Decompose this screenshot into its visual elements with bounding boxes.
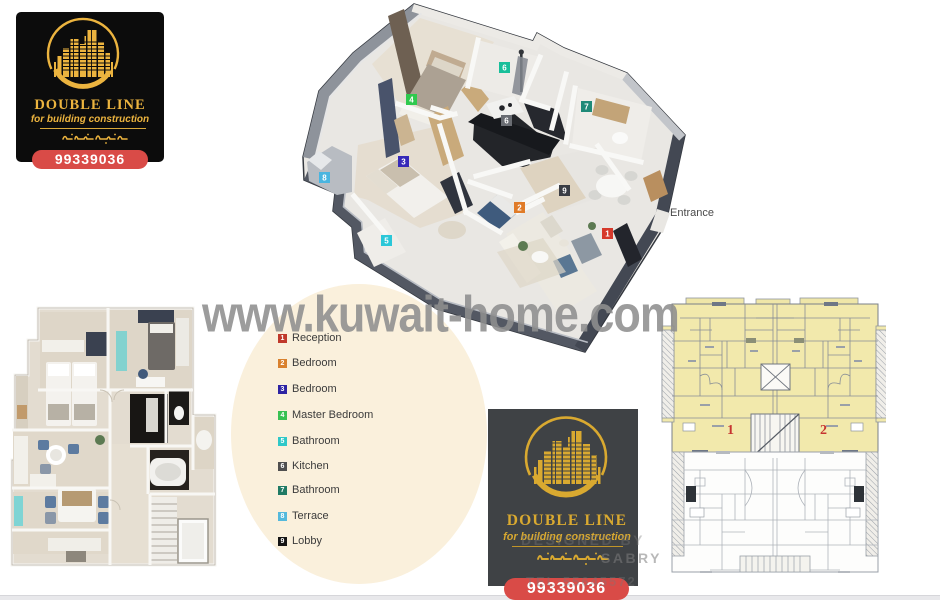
svg-text:1: 1 — [727, 423, 734, 438]
svg-text:Entrance: Entrance — [670, 207, 714, 219]
svg-text:DOUBLE LINE: DOUBLE LINE — [507, 512, 627, 529]
svg-text:for building construction: for building construction — [31, 114, 149, 125]
svg-text:6: 6 — [504, 117, 509, 126]
svg-text:3: 3 — [401, 158, 406, 167]
svg-text:8: 8 — [322, 174, 327, 183]
svg-text:7: 7 — [584, 103, 589, 112]
svg-text:4: 4 — [409, 96, 414, 105]
svg-text:6: 6 — [502, 64, 507, 73]
svg-text:2: 2 — [820, 423, 827, 438]
svg-text:5: 5 — [384, 237, 389, 246]
svg-text:1: 1 — [605, 230, 610, 239]
svg-text:2: 2 — [517, 204, 522, 213]
svg-text:9: 9 — [562, 187, 567, 196]
svg-text:DOUBLE LINE: DOUBLE LINE — [34, 97, 145, 113]
